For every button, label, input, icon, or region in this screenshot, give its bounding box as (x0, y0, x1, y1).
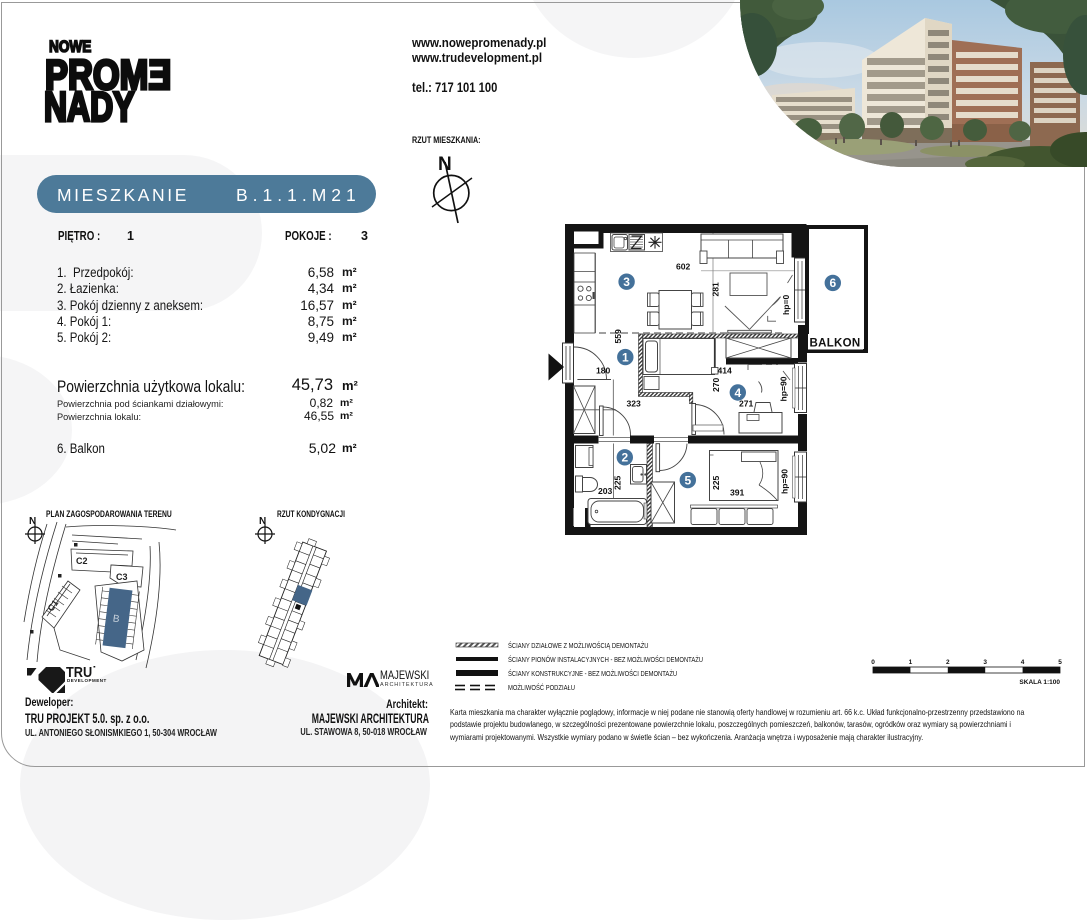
svg-text:559: 559 (613, 329, 623, 344)
svg-text:3: 3 (983, 659, 987, 666)
svg-text:270: 270 (711, 377, 721, 392)
svg-text:323: 323 (627, 399, 642, 409)
svg-text:602: 602 (676, 262, 691, 272)
svg-text:414: 414 (718, 365, 733, 375)
svg-text:2: 2 (946, 659, 950, 666)
svg-text:225: 225 (613, 475, 623, 490)
svg-text:hp=90: hp=90 (780, 469, 790, 494)
svg-text:4: 4 (1021, 659, 1025, 666)
svg-text:6: 6 (829, 276, 836, 290)
svg-text:1: 1 (622, 350, 629, 364)
svg-text:391: 391 (730, 488, 745, 498)
svg-text:C3: C3 (116, 572, 128, 582)
svg-text:1: 1 (909, 659, 913, 666)
svg-text:5: 5 (684, 473, 691, 487)
svg-text:SKALA 1:100: SKALA 1:100 (1019, 679, 1060, 686)
svg-text:203: 203 (598, 486, 613, 496)
svg-text:3: 3 (623, 275, 630, 289)
svg-text:271: 271 (739, 399, 754, 409)
svg-text:180: 180 (596, 365, 611, 375)
svg-text:281: 281 (711, 282, 721, 297)
svg-text:5: 5 (1058, 659, 1062, 666)
svg-text:N: N (438, 154, 452, 175)
svg-text:4: 4 (734, 386, 741, 400)
svg-text:225: 225 (711, 475, 721, 490)
svg-text:BALKON: BALKON (810, 338, 861, 350)
svg-text:2: 2 (621, 451, 628, 465)
svg-text:C2: C2 (76, 556, 88, 566)
svg-text:0: 0 (871, 659, 875, 666)
svg-text:hp=0: hp=0 (781, 294, 791, 315)
svg-text:hp=90: hp=90 (779, 376, 789, 401)
